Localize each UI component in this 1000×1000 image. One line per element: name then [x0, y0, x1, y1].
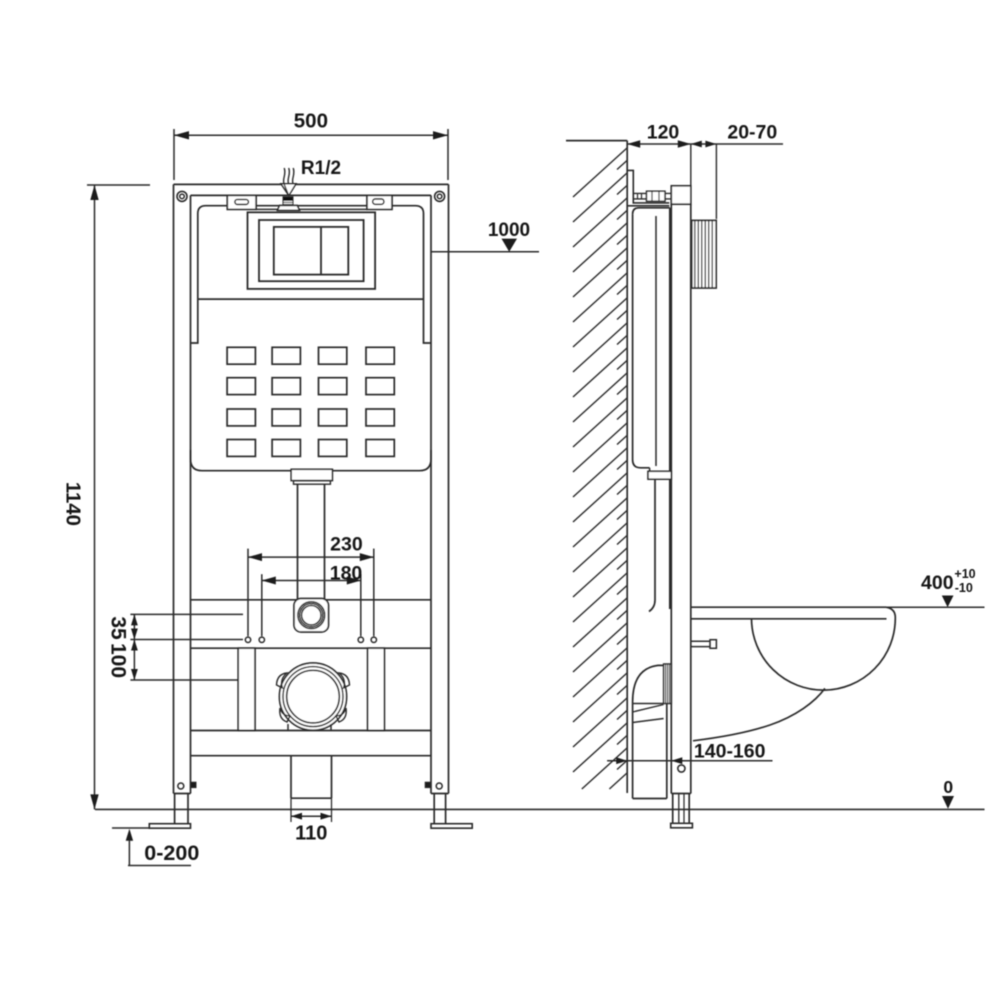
svg-text:400: 400 — [921, 572, 954, 594]
svg-text:100: 100 — [107, 643, 130, 678]
svg-text:R1/2: R1/2 — [301, 158, 341, 179]
svg-text:35: 35 — [107, 616, 130, 640]
svg-text:230: 230 — [330, 534, 363, 556]
svg-text:140-160: 140-160 — [694, 741, 766, 763]
svg-text:500: 500 — [294, 110, 328, 133]
svg-text:110: 110 — [295, 823, 327, 845]
svg-text:180: 180 — [330, 562, 363, 584]
svg-text:20-70: 20-70 — [727, 122, 777, 144]
svg-text:0: 0 — [943, 777, 953, 797]
svg-text:1000: 1000 — [488, 220, 530, 241]
svg-text:0-200: 0-200 — [144, 841, 199, 865]
svg-text:-10: -10 — [955, 581, 973, 595]
svg-text:120: 120 — [647, 122, 680, 144]
svg-text:+10: +10 — [954, 567, 975, 581]
svg-text:1140: 1140 — [61, 482, 83, 526]
